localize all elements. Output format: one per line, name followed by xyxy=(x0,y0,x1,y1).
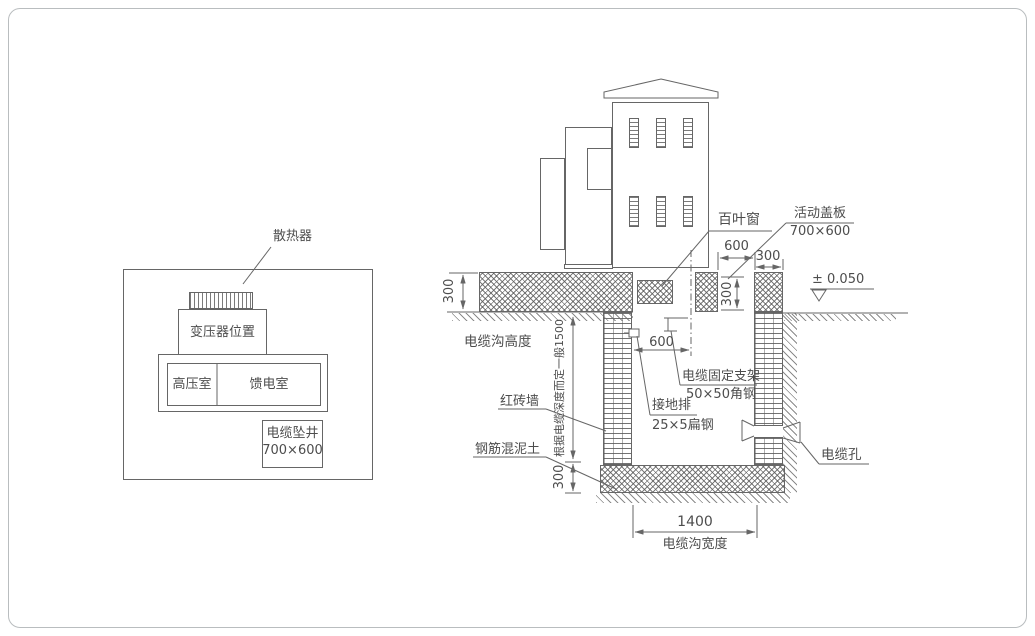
bracket-label: 电缆固定支架 xyxy=(682,369,760,384)
cablehole-leader xyxy=(801,442,819,464)
cover-size: 700×600 xyxy=(786,224,854,239)
section-linework xyxy=(0,0,1035,636)
depth-note: 根据电缆深度而定一般1500 xyxy=(553,313,567,463)
level-mark-triangle xyxy=(812,290,826,301)
cable-hole-label: 电缆孔 xyxy=(821,448,862,463)
cabinet-roof xyxy=(604,79,718,98)
dim-cover-300-text: 300 xyxy=(721,279,735,309)
louver-leader xyxy=(662,231,709,286)
cover-label: 活动盖板 xyxy=(786,206,854,221)
dim-floor-300-text: 300 xyxy=(553,462,567,492)
dim-1400-text: 1400 xyxy=(634,515,756,529)
dim-inner-600-text: 600 xyxy=(632,336,691,350)
brick-wall-label: 红砖墙 xyxy=(500,394,539,409)
bracket-spec: 50×50角钢 xyxy=(686,387,756,402)
drawing-canvas: 散热器 变压器位置 高压室 馈电室 电缆坠井 700×600 xyxy=(0,0,1035,636)
dim-slab-300-text: 300 xyxy=(443,276,457,306)
level-mark-text: ± 0.050 xyxy=(812,273,864,287)
ground-bar-spec: 25×5扁钢 xyxy=(652,418,714,433)
trench-width-label: 电缆沟宽度 xyxy=(634,537,756,552)
trench-height-label: 电缆沟高度 xyxy=(464,335,532,350)
dim-cap-300-text: 300 xyxy=(751,250,785,264)
louver-label: 百叶窗 xyxy=(706,213,772,228)
ground-bar-label: 接地排 xyxy=(652,398,691,413)
radiator-leader xyxy=(243,247,271,284)
dim-opening-600-text: 600 xyxy=(718,240,755,254)
concrete-label: 钢筋混泥土 xyxy=(475,442,540,457)
